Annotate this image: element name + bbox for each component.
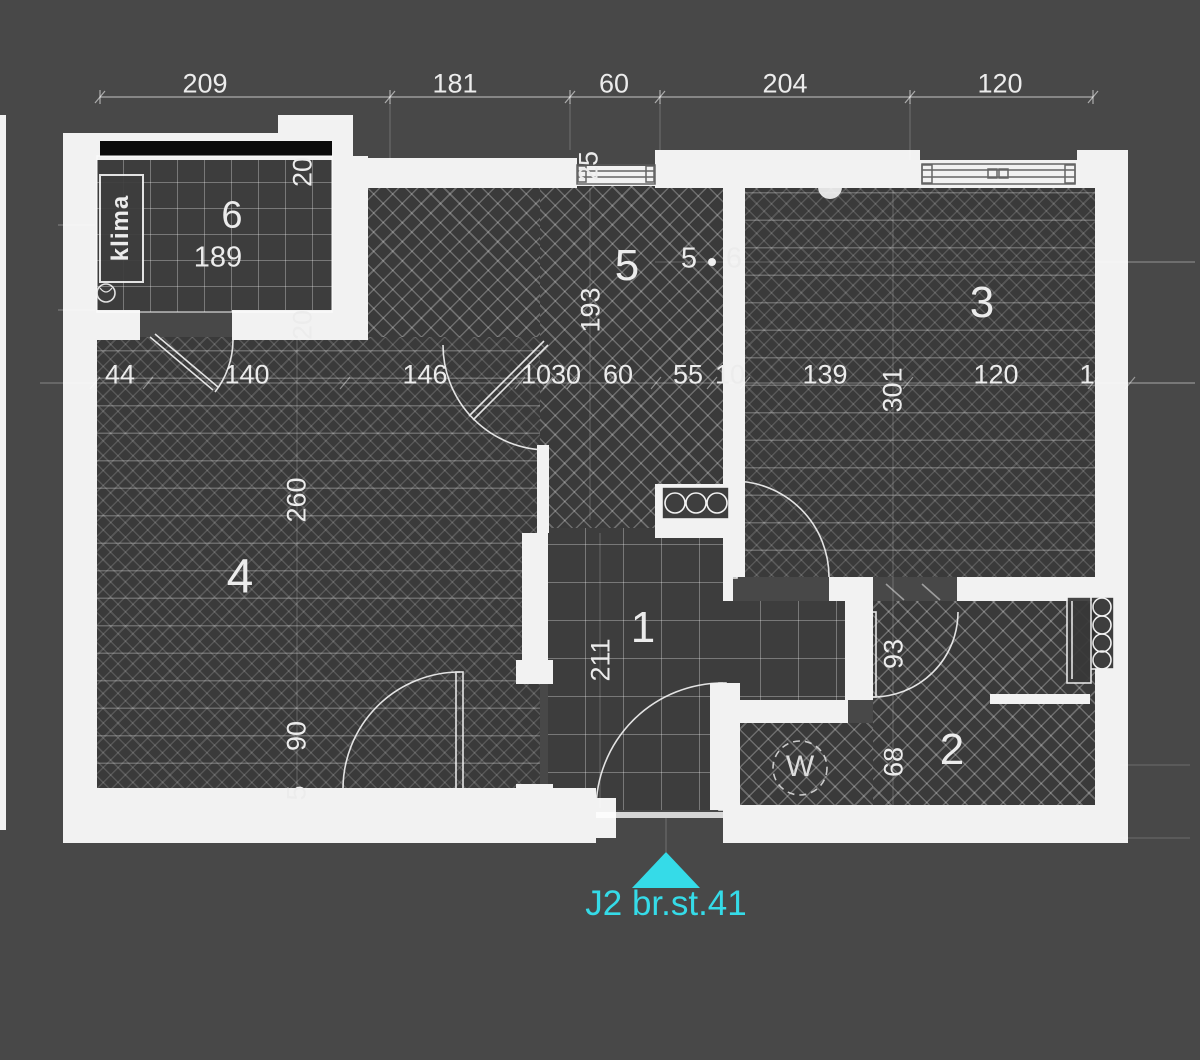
living-room-door-icon [343,672,463,789]
dim-60-top: 60 [599,69,629,100]
floor-plan-canvas: 2091816020412044140146103060551013912012… [0,0,1200,1060]
room-number-1: 1 [631,603,655,653]
dim-146: 146 [402,360,447,391]
unit-marker-icon [632,852,700,888]
room-number-3: 3 [970,278,994,328]
unit-label: J2 br.st.41 [585,884,746,924]
dim-6-pair: 6 [726,243,742,276]
drain-icon [97,284,115,302]
dim-140: 140 [224,360,269,391]
dim-93: 93 [879,639,910,669]
bath-shelf-icon [1067,597,1091,683]
dim-209: 209 [182,69,227,100]
dim-10: 10 [715,360,745,391]
dim-25: 25 [574,151,605,181]
dim-separator-dot [708,258,716,266]
dim-120-mid: 120 [973,360,1018,391]
bedroom-window-icon [922,164,1075,184]
dim-193: 193 [576,287,607,332]
room-number-6: 6 [221,195,242,238]
room-number-4: 4 [227,550,254,605]
kitchen-door-icon [443,341,548,450]
dim-44: 44 [105,360,135,391]
dim-260: 260 [282,477,313,522]
klima-label: klima [107,195,135,261]
room-number-5: 5 [615,241,639,291]
entrance-door-icon [596,683,726,810]
wall-notch [818,187,842,199]
dim-189: 189 [194,242,242,275]
dim-20-a: 20 [288,157,319,187]
dim-20-b: 20 [288,310,319,340]
dim-1030: 1030 [521,360,581,391]
dim-cutoff: 1 [1079,360,1094,391]
washing-machine-label: W [786,750,814,784]
dim-5-v: 5 [282,785,313,800]
dim-68: 68 [879,747,910,777]
dim-55: 55 [673,360,703,391]
dimension-lines [40,90,1195,838]
dim-204: 204 [762,69,807,100]
bedroom-door-icon [730,481,829,578]
room-number-2: 2 [940,725,964,775]
dim-5-pair: 5 [681,243,697,276]
extension-lines [297,103,1195,852]
dim-139: 139 [802,360,847,391]
bath-radiator-icon [1090,597,1114,669]
dim-211: 211 [586,638,617,681]
dim-90: 90 [282,721,313,751]
dim-181: 181 [432,69,477,100]
dim-60-mid: 60 [603,360,633,391]
dim-120-top: 120 [977,69,1022,100]
dim-301: 301 [878,367,909,412]
kitchen-radiator-icon [662,487,729,519]
